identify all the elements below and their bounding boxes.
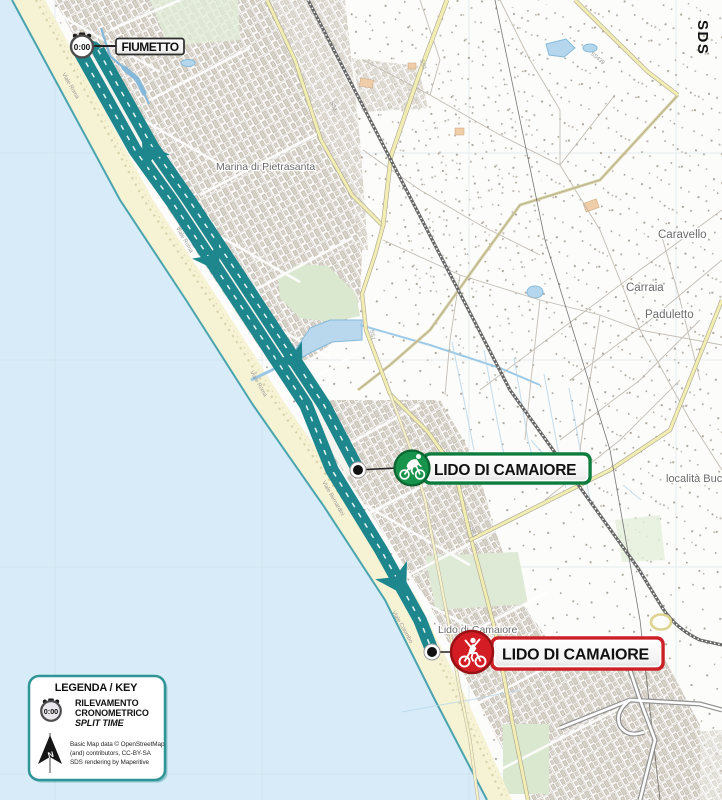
- svg-text:Carraia: Carraia: [626, 282, 664, 294]
- svg-text:SDS rendering by Maperitive: SDS rendering by Maperitive: [70, 759, 150, 766]
- svg-text:Paduletto: Paduletto: [645, 309, 694, 321]
- svg-text:0:00: 0:00: [44, 707, 58, 716]
- svg-text:LIDO DI CAMAIORE: LIDO DI CAMAIORE: [434, 462, 576, 479]
- svg-text:Caravello: Caravello: [658, 229, 707, 241]
- svg-text:FIUMETTO: FIUMETTO: [121, 40, 178, 54]
- svg-text:(and) contributors, CC-BY-SA: (and) contributors, CC-BY-SA: [70, 750, 152, 757]
- svg-text:0:00: 0:00: [74, 43, 91, 52]
- svg-text:SDS: SDS: [694, 20, 711, 55]
- svg-text:Marina di Pietrasanta: Marina di Pietrasanta: [216, 161, 315, 173]
- svg-text:RILEVAMENTO: RILEVAMENTO: [75, 698, 139, 708]
- svg-text:SPLIT TIME: SPLIT TIME: [75, 718, 125, 728]
- svg-text:Basic Map data © OpenStreetMap: Basic Map data © OpenStreetMap: [70, 740, 165, 748]
- svg-text:LIDO DI CAMAIORE: LIDO DI CAMAIORE: [502, 647, 650, 664]
- svg-text:LEGENDA / KEY: LEGENDA / KEY: [55, 682, 138, 694]
- svg-text:località Bucin: località Bucin: [666, 473, 722, 485]
- svg-text:CRONOMETRICO: CRONOMETRICO: [75, 708, 149, 718]
